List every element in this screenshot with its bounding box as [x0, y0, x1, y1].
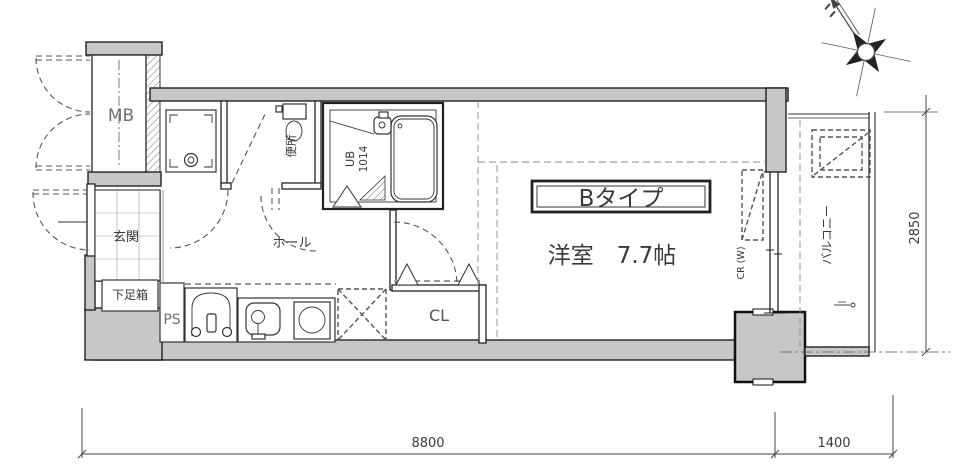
- refrigerator-space: [338, 289, 386, 340]
- bottom-left-wall: [85, 308, 162, 360]
- label-unit-bath: UB: [343, 151, 357, 167]
- label-toilet: 便所: [284, 134, 298, 157]
- toilet-right-wall: [315, 101, 321, 187]
- kitchen-counter: [238, 298, 335, 342]
- label-unit-bath-size: 1014: [358, 145, 370, 172]
- label-meter-box: MB: [108, 106, 134, 126]
- label-unit-type: Bタイプ: [579, 186, 664, 212]
- label-room-size: 洋室 7.7帖: [548, 243, 677, 269]
- mb-bottom-wall: [88, 172, 161, 186]
- labels-layer: MB 便所 UB 1014 ホール 玄関 下足箱 PS CL Bタイプ 洋室 7…: [108, 106, 923, 451]
- mb-top-wall: [86, 42, 162, 55]
- bottom-wall: [95, 340, 740, 360]
- hall-door-swing: [170, 190, 228, 248]
- ceiling-guide-lines: [478, 101, 800, 347]
- floorplan-canvas: MB 便所 UB 1014 ホール 玄関 下足箱 PS CL Bタイプ 洋室 7…: [0, 0, 961, 471]
- mb-double-doors: [36, 56, 90, 170]
- left-lower-wall: [85, 255, 95, 310]
- label-pipe-space: PS: [163, 312, 180, 328]
- compass-icon: [803, 0, 910, 96]
- label-curtain-rail: CR (W): [736, 246, 747, 279]
- label-shoe-cabinet: 下足箱: [112, 287, 148, 302]
- curtain-rail-box: [742, 170, 763, 240]
- toilet-door: [232, 112, 279, 210]
- toilet-door-post: [221, 183, 231, 189]
- top-wall: [150, 88, 788, 101]
- right-wall-upper: [766, 88, 786, 172]
- kitchen-sink: [246, 303, 280, 335]
- entrance-wall: [87, 184, 95, 256]
- washing-machine-pan: [166, 110, 216, 172]
- label-closet: CL: [429, 306, 449, 325]
- type-label-box: Bタイプ: [532, 181, 710, 212]
- label-entrance: 玄関: [113, 230, 139, 245]
- label-hall: ホール: [272, 236, 311, 251]
- label-dim-depth: 2850: [908, 211, 923, 244]
- label-balcony: バルコニー: [820, 205, 834, 265]
- bathtub: [391, 116, 437, 202]
- entrance-door: [33, 190, 90, 250]
- mb-hatched-wall: [146, 55, 160, 172]
- floorplan-page: MB 便所 UB 1014 ホール 玄関 下足箱 PS CL Bタイプ 洋室 7…: [0, 0, 961, 471]
- toilet-bottom-wall: [282, 183, 321, 189]
- closet-folding-doors: [394, 264, 482, 285]
- label-dim-main-width: 8800: [411, 436, 444, 451]
- balcony-window: [764, 172, 786, 313]
- label-dim-balcony-width: 1400: [817, 436, 850, 451]
- toilet-left-wall: [221, 101, 227, 187]
- structural-pillar: [735, 309, 805, 385]
- washbasin: [185, 288, 237, 342]
- evacuation-hatch: [812, 130, 870, 177]
- closet-top-wall: [392, 285, 484, 291]
- balcony-drain: [834, 302, 855, 307]
- closet-right-wall: [479, 285, 486, 343]
